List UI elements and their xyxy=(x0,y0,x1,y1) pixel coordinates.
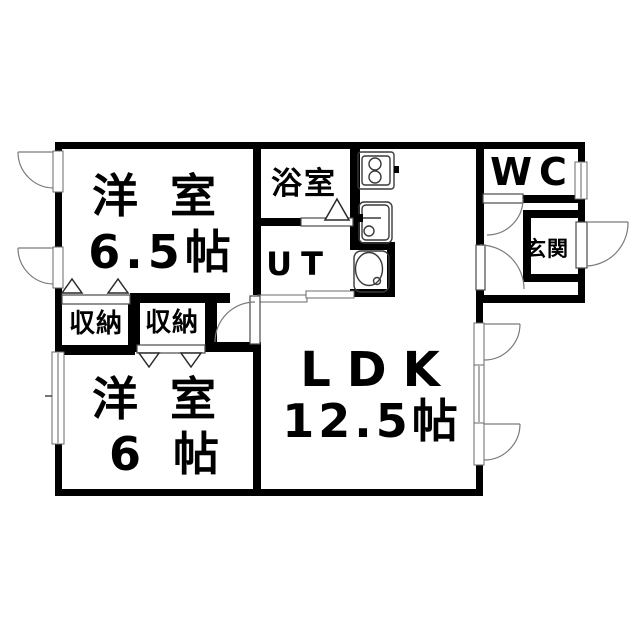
wash-basin-icon xyxy=(354,251,389,292)
bedroom2-label: 洋 室 xyxy=(92,372,224,426)
wall-entrance-top xyxy=(523,210,578,218)
door-swing-arc xyxy=(215,302,255,342)
wall-closet1-bottom xyxy=(55,345,135,355)
closet2-folding-door-icon xyxy=(137,345,205,367)
sliding-window-icon xyxy=(45,352,64,444)
fixed-window-icon xyxy=(474,365,484,423)
door-swing-arc xyxy=(487,199,523,235)
bathroom-label: 浴室 xyxy=(271,166,337,202)
ldk-label: LDK xyxy=(300,342,456,398)
hall-door-icon xyxy=(476,245,524,290)
closet1-folding-door-icon xyxy=(62,279,130,304)
casement-window-icon xyxy=(474,323,520,365)
entrance-door-icon xyxy=(576,222,628,268)
wc-window-icon xyxy=(575,162,587,199)
wall-entry-block-bottom xyxy=(476,295,585,303)
folding-door-marker xyxy=(139,353,159,367)
wall-bedroom1-right xyxy=(253,142,261,295)
wall-wc-bottom xyxy=(523,195,578,203)
bedroom1-size-label: 6.5帖 xyxy=(88,225,236,279)
folding-door-marker xyxy=(108,279,128,293)
kitchen-sink-icon xyxy=(356,202,392,243)
wc-door-icon xyxy=(483,194,523,235)
wc-label: WC xyxy=(490,150,574,194)
bedroom1-label: 洋 室 xyxy=(92,169,224,223)
closet1-label: 収納 xyxy=(69,308,123,339)
utility-label: UT xyxy=(266,245,332,283)
bedroom2-size-label: 6 帖 xyxy=(109,427,227,481)
folding-door-marker xyxy=(325,199,349,220)
wall-bedroom2-right xyxy=(253,345,261,489)
folding-door-marker xyxy=(62,279,82,293)
ldk-size-label: 12.5帖 xyxy=(282,394,462,448)
bedroom-vestibule-door-icon xyxy=(215,296,260,344)
wall-top xyxy=(55,142,585,149)
stove-icon xyxy=(358,152,399,189)
folding-door-marker xyxy=(181,353,201,367)
wall-ldk-right-lower xyxy=(476,465,483,489)
closet2-label: 収納 xyxy=(145,307,199,338)
floor-plan: 洋 室 6.5帖 浴室 UT WC 玄関 収納 収納 洋 室 6 帖 LDK 1… xyxy=(0,0,640,640)
casement-window-icon xyxy=(18,151,63,192)
casement-window-icon xyxy=(18,247,63,288)
wall-bottom xyxy=(55,489,483,496)
door-swing-arc xyxy=(587,222,628,266)
casement-window-icon xyxy=(474,423,520,465)
door-swing-arc xyxy=(480,245,524,289)
wall-bath-ut-divider xyxy=(261,218,301,226)
bath-folding-door-icon xyxy=(301,199,353,226)
sliding-door-icon xyxy=(258,291,354,302)
floor-plan-drawing: 洋 室 6.5帖 浴室 UT WC 玄関 収納 収納 洋 室 6 帖 LDK 1… xyxy=(0,0,640,640)
wall-ldk-right-upper xyxy=(476,303,483,323)
entrance-label: 玄関 xyxy=(525,237,569,261)
wall-entrance-bottom xyxy=(523,274,585,282)
